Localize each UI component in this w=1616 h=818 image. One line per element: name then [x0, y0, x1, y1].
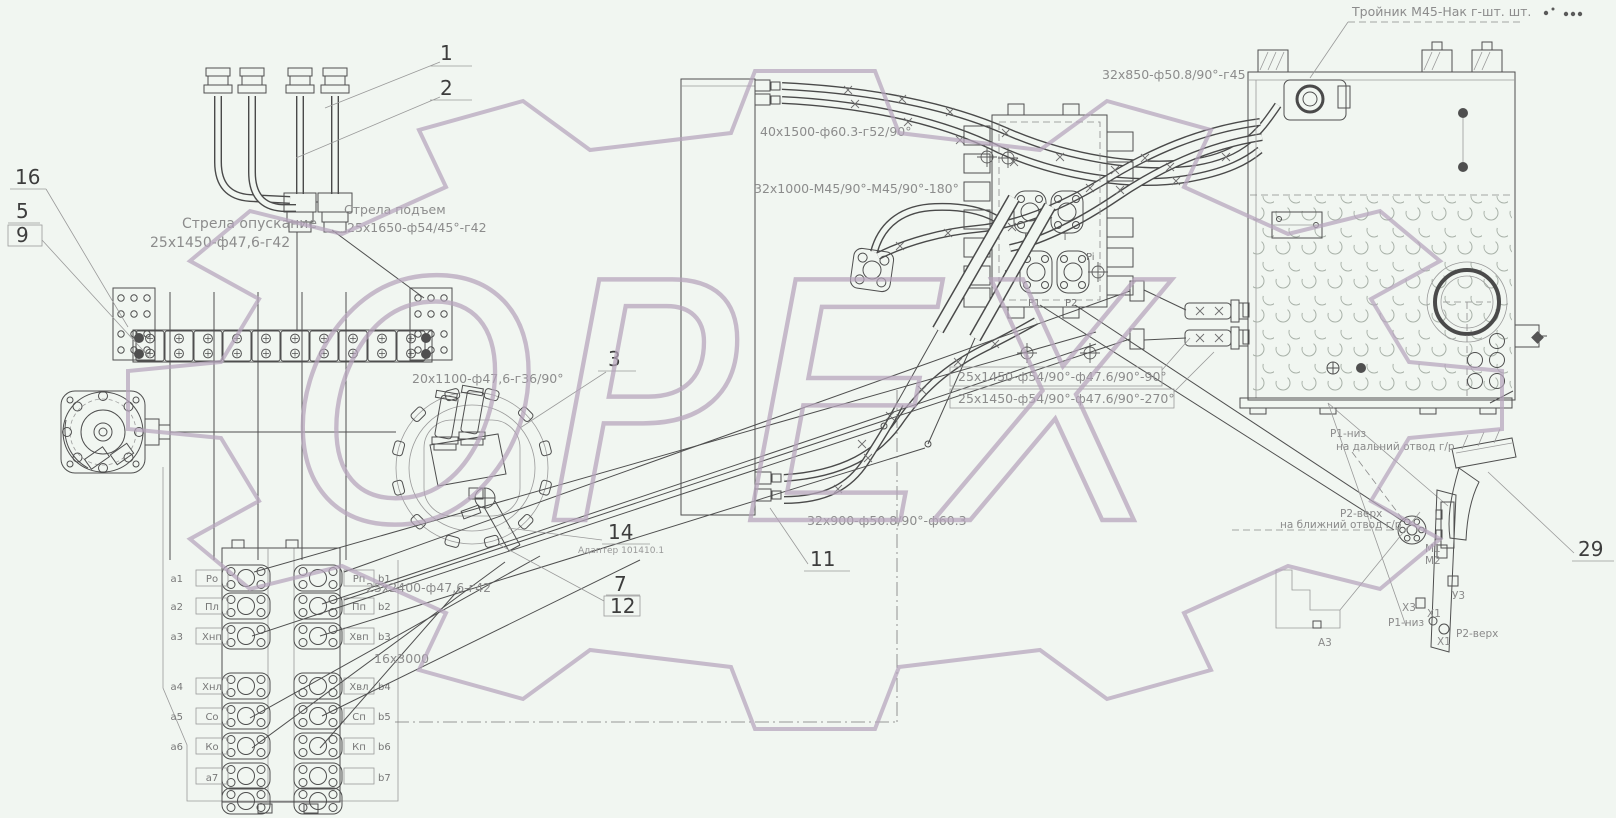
- label-a3: А3: [1318, 637, 1332, 649]
- callout-5: 5: [16, 199, 29, 223]
- port-label-a5: Со: [205, 712, 218, 723]
- tank-supply-hoses: [1185, 300, 1248, 349]
- oil-tank: [1240, 42, 1547, 414]
- port-prefix-a1: a1: [171, 574, 184, 585]
- port-label-a3: Хнп: [202, 632, 222, 643]
- port-prefix-a5: a5: [171, 712, 184, 723]
- port-suffix-b3: b3: [378, 632, 391, 643]
- port-suffix-b6: b6: [378, 742, 391, 753]
- panel-top-fittings: [755, 80, 780, 105]
- label-p2-top-b: Р2-верх: [1456, 628, 1498, 640]
- port-suffix-b2: b2: [378, 602, 391, 613]
- label-x1-a: Х1: [1427, 608, 1441, 620]
- port-suffix-b7: b7: [378, 773, 391, 784]
- callout-1: 1: [440, 41, 453, 65]
- label-hose-40: 40х1500-ф60.3-г52/90°: [760, 124, 912, 139]
- port-label-b4: Хвл: [349, 682, 368, 693]
- port-prefix-a6: a6: [171, 742, 184, 753]
- port-label-a2: Пл: [205, 602, 219, 613]
- port-label-a1: Ро: [206, 574, 218, 585]
- port-label-b3: Хвп: [349, 632, 368, 643]
- port-suffix-b5: b5: [378, 712, 391, 723]
- port-label-b5: Сп: [352, 712, 366, 723]
- label-p1-low-note: на дальний отвод г/р: [1336, 441, 1455, 453]
- valve-bank-left-labels: a1 Ро a2 Пл a3 Хнп a4 Хнл a5 Со a6 Ко a7: [171, 570, 229, 784]
- callout-29: 29: [1578, 537, 1603, 561]
- label-m2: М2: [1425, 555, 1441, 567]
- hydraulic-piping-diagram: a1 Ро a2 Пл a3 Хнп a4 Хнл a5 Со a6 Ко a7…: [0, 0, 1616, 818]
- label-x3: Х3: [1402, 602, 1416, 614]
- label-p2-top-note: на ближний отвод г/р: [1280, 519, 1402, 531]
- label-x1-b: Х1: [1437, 636, 1451, 648]
- label-hose-32-1000: 32х1000-М45/90°-М45/90°-180°: [754, 181, 959, 196]
- tank-tee-elbow: [1284, 80, 1350, 120]
- pipe-end-fittings: [204, 68, 349, 93]
- valve-bank-right-labels: Рп b1 Пп b2 Хвп b3 Хвл b4 Сп b5 Кп b6 b7: [344, 570, 391, 784]
- corner-dots: [1544, 8, 1582, 17]
- drawing-canvas: a1 Ро a2 Пл a3 Хнп a4 Хнл a5 Со a6 Ко a7…: [0, 0, 1616, 818]
- port-label-a6: Ко: [205, 742, 218, 753]
- label-u3: У3: [1452, 590, 1465, 602]
- port-prefix-a3: a3: [171, 632, 184, 643]
- port-label-b6: Кп: [352, 742, 366, 753]
- port-label-a4: Хнл: [202, 682, 222, 693]
- label-hose-32-850: 32х850-ф50.8/90°-г45: [1102, 67, 1246, 82]
- label-troynik: Тройник М45-Нак г-шт. шт.: [1351, 4, 1531, 19]
- label-p1-low: Р1-низ: [1330, 428, 1366, 440]
- tank-right-fitting: [1515, 325, 1547, 347]
- port-prefix-a7: a7: [206, 773, 219, 784]
- callout-2: 2: [440, 76, 453, 100]
- tank-perforated-panel: [1253, 196, 1512, 396]
- callout-9: 9: [16, 223, 29, 247]
- port-prefix-a4: a4: [171, 682, 184, 693]
- label-p1-low-b: Р1-низ: [1388, 617, 1424, 629]
- watermark-text: ОРЕХ: [290, 214, 1172, 598]
- port-prefix-a2: a2: [171, 602, 184, 613]
- port-label-b2: Пп: [352, 602, 366, 613]
- callout-16: 16: [15, 165, 40, 189]
- tank-top-fittings: [1258, 42, 1502, 72]
